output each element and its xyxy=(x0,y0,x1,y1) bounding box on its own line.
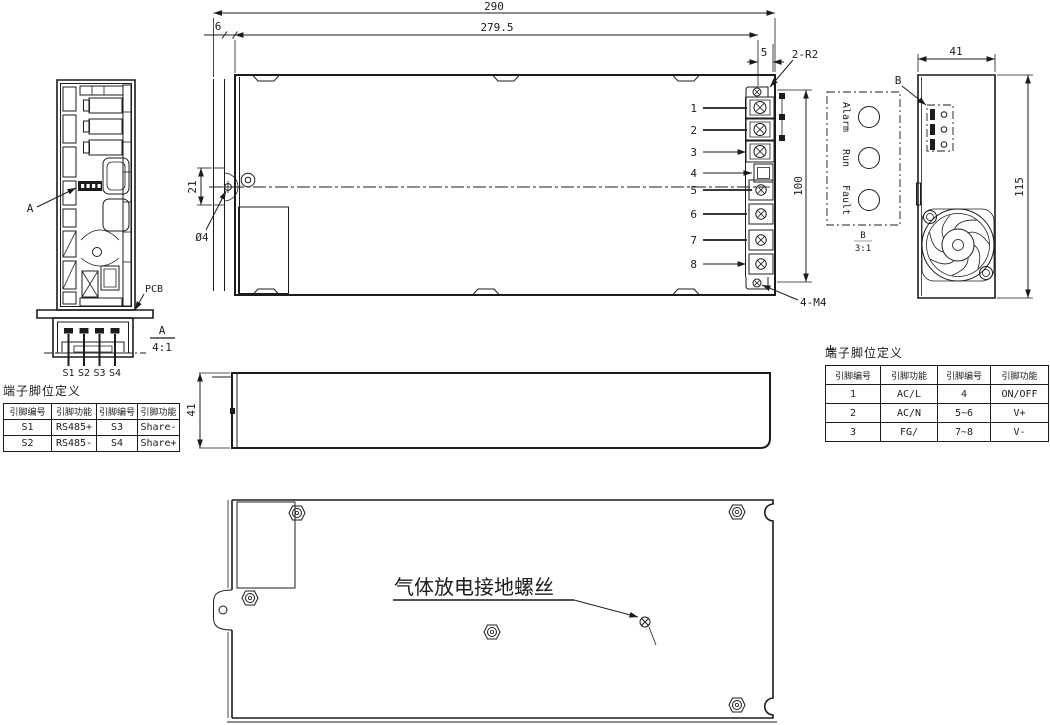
table-cell: 5~6 xyxy=(938,404,991,423)
detail-a-name: A xyxy=(159,324,166,337)
pin-label-s4: S4 xyxy=(109,368,121,379)
engineering-drawing-page: A S1 S2 S3 S4 PCB A 4:1 xyxy=(0,0,1050,725)
table-header-cell: 引脚功能 xyxy=(138,404,180,420)
power-pin-table: 端子脚位定义 引脚编号 引脚功能 引脚编号 引脚功能 1 AC/L 4 ON/O… xyxy=(825,344,1049,442)
power-table-title: 端子脚位定义 xyxy=(825,344,1049,361)
table-cell: 7~8 xyxy=(938,423,991,442)
flange-offset-dim: 6 xyxy=(215,20,222,33)
table-cell: S3 xyxy=(97,420,138,436)
table-header-cell: 引脚功能 xyxy=(881,366,938,385)
alarm-led-hole xyxy=(859,107,880,128)
table-cell: 2 xyxy=(826,404,881,423)
terminal-8 xyxy=(749,254,773,274)
table-header-cell: 引脚编号 xyxy=(4,404,52,420)
table-cell: RS485+ xyxy=(52,420,97,436)
side-view: 41 xyxy=(185,373,770,448)
end-width-dim: 41 xyxy=(949,45,962,58)
table-header-cell: 引脚功能 xyxy=(991,366,1049,385)
hex-screw-icon xyxy=(484,625,500,639)
terminal-7 xyxy=(749,230,773,250)
terminal-number-8: 8 xyxy=(690,258,697,271)
end-height-dim: 115 xyxy=(1013,177,1026,197)
table-header-cell: 引脚编号 xyxy=(826,366,881,385)
fault-label: Fault xyxy=(840,185,851,215)
terminal-5 xyxy=(749,180,773,200)
hex-screw-icon xyxy=(242,591,258,605)
run-led-hole xyxy=(859,148,880,169)
table-cell: AC/L xyxy=(881,385,938,404)
table-header-cell: 引脚编号 xyxy=(97,404,138,420)
fan-screw-icon xyxy=(924,211,937,224)
terminal-number-4: 4 xyxy=(690,167,697,180)
left-section-view: A xyxy=(27,80,135,310)
table-row: S1 RS485+ S3 Share- xyxy=(4,420,180,436)
terminal-6 xyxy=(749,204,773,224)
table-cell: V- xyxy=(991,423,1049,442)
table-header-row: 引脚编号 引脚功能 引脚编号 引脚功能 xyxy=(4,404,180,420)
table-cell: S4 xyxy=(97,436,138,452)
table-cell: S2 xyxy=(4,436,52,452)
overall-width-dim: 290 xyxy=(484,0,504,13)
terminal-2 xyxy=(746,119,774,140)
hex-screw-icon xyxy=(729,698,745,712)
detail-b-view: Alarm Run Fault B 3:1 xyxy=(827,92,900,254)
corner-radius-dim: 2-R2 xyxy=(792,48,819,61)
terminal-number-1: 1 xyxy=(690,102,697,115)
alarm-label: Alarm xyxy=(840,102,851,132)
run-label: Run xyxy=(840,149,851,167)
table-cell: AC/N xyxy=(881,404,938,423)
main-top-view: Ø4 21 xyxy=(186,0,827,309)
table-cell: 4 xyxy=(938,385,991,404)
table-cell: 1 xyxy=(826,385,881,404)
earth-ground-icon xyxy=(825,344,836,355)
terminal-number-7: 7 xyxy=(690,234,697,247)
fg-label: FG/ xyxy=(900,427,918,438)
led-indicator-block xyxy=(927,105,953,151)
pin-label-s1: S1 xyxy=(62,368,74,379)
terminal-number-2: 2 xyxy=(690,124,697,137)
table-cell: Share+ xyxy=(138,436,180,452)
table-row: 1 AC/L 4 ON/OFF xyxy=(826,385,1049,404)
table-row: S2 RS485- S4 Share+ xyxy=(4,436,180,452)
pcb-label: PCB xyxy=(145,284,163,295)
hex-screw-icon xyxy=(289,506,305,520)
terminal-span-dim: 100 xyxy=(792,176,805,196)
grounding-screw-note: 气体放电接地螺丝 xyxy=(394,575,554,599)
terminal-number-leaders: 1 2 3 4 5 6 7 8 xyxy=(690,102,752,271)
terminal-4-switch xyxy=(754,164,773,182)
table-cell: Share- xyxy=(138,420,180,436)
bottom-view: 气体放电接地螺丝 xyxy=(214,500,778,722)
section-a-label: A xyxy=(27,202,34,215)
table-header-cell: 引脚功能 xyxy=(52,404,97,420)
pin-label-s3: S3 xyxy=(93,368,105,379)
detail-b-ref-label: B xyxy=(895,74,902,87)
detail-a-scale: 4:1 xyxy=(152,341,172,354)
table-cell: S1 xyxy=(4,420,52,436)
grounding-screw-icon xyxy=(640,617,656,645)
table-cell: FG/ xyxy=(881,423,938,442)
connector-pins xyxy=(64,328,120,366)
table-row: 2 AC/N 5~6 V+ xyxy=(826,404,1049,423)
terminal-number-3: 3 xyxy=(690,146,697,159)
signal-connector-symbol xyxy=(78,181,102,191)
table-cell: V+ xyxy=(991,404,1049,423)
fan-icon xyxy=(922,209,994,281)
power-table: 引脚编号 引脚功能 引脚编号 引脚功能 1 AC/L 4 ON/OFF 2 AC… xyxy=(825,365,1049,442)
table-cell: RS485- xyxy=(52,436,97,452)
signal-pin-table: 端子脚位定义 引脚编号 引脚功能 引脚编号 引脚功能 S1 RS485+ S3 … xyxy=(3,382,180,452)
table-cell: 3 xyxy=(826,423,881,442)
table-cell: ON/OFF xyxy=(991,385,1049,404)
detail-b-name: B xyxy=(860,231,865,241)
terminal-3 xyxy=(746,141,774,162)
signal-table: 引脚编号 引脚功能 引脚编号 引脚功能 S1 RS485+ S3 Share- … xyxy=(3,403,180,452)
depth-dim: 41 xyxy=(185,403,198,416)
terminal-strip xyxy=(746,87,786,289)
end-view: B 41 115 xyxy=(895,45,1033,298)
screw-head-icon xyxy=(241,173,255,187)
hole-dia-dim: Ø4 xyxy=(195,231,209,244)
table-header-row: 引脚编号 引脚功能 引脚编号 引脚功能 xyxy=(826,366,1049,385)
signal-table-title: 端子脚位定义 xyxy=(3,382,180,399)
tab-width-dim: 5 xyxy=(761,46,768,59)
chassis-tabs xyxy=(253,76,699,295)
capacitor-symbols xyxy=(84,98,123,155)
fault-led-hole xyxy=(859,190,880,211)
hole-offset-dim: 21 xyxy=(186,180,199,193)
hex-screw-icon xyxy=(729,505,745,519)
body-width-dim: 279.5 xyxy=(480,21,513,34)
pin-label-s2: S2 xyxy=(78,368,90,379)
detail-b-scale: 3:1 xyxy=(855,244,871,254)
terminal-number-5: 5 xyxy=(690,184,697,197)
table-header-cell: 引脚编号 xyxy=(938,366,991,385)
terminal-1 xyxy=(746,97,774,118)
fan-screw-icon xyxy=(980,267,993,280)
mount-screws-dim: 4-M4 xyxy=(800,296,827,309)
table-row: 3 FG/ 7~8 V- xyxy=(826,423,1049,442)
terminal-number-6: 6 xyxy=(690,208,697,221)
